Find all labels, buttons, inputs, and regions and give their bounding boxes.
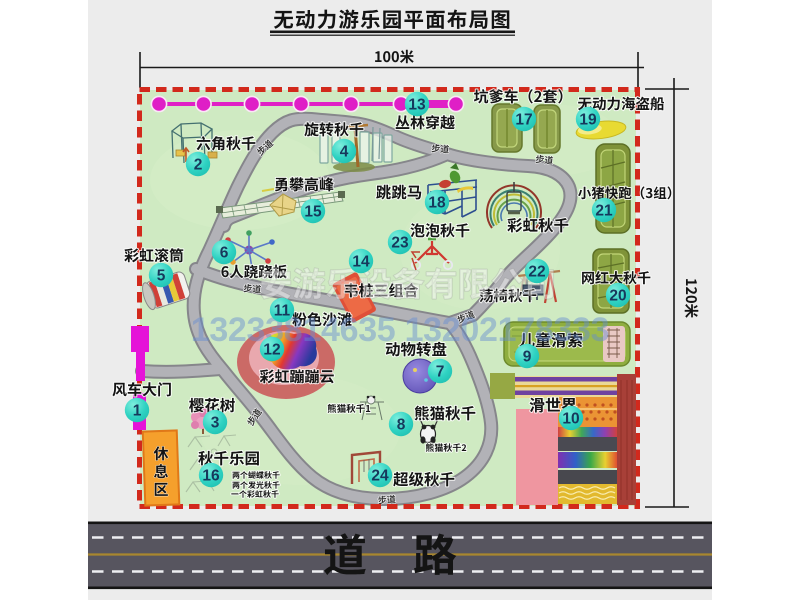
svg-text:7: 7	[436, 364, 445, 381]
svg-text:10: 10	[562, 411, 579, 428]
svg-text:22: 22	[528, 264, 545, 281]
svg-text:2: 2	[194, 157, 203, 174]
svg-text:6: 6	[220, 245, 229, 262]
svg-text:14: 14	[352, 254, 370, 271]
svg-text:13: 13	[408, 97, 426, 114]
svg-text:19: 19	[579, 112, 597, 129]
svg-text:5: 5	[157, 268, 166, 285]
svg-text:20: 20	[609, 288, 626, 305]
svg-text:23: 23	[391, 235, 409, 252]
svg-text:16: 16	[202, 468, 220, 485]
svg-text:21: 21	[595, 203, 613, 220]
svg-text:12: 12	[263, 342, 280, 359]
svg-text:13233814635 13202178333: 13233814635 13202178333	[191, 311, 610, 349]
svg-text:24: 24	[371, 468, 389, 485]
svg-text:4: 4	[340, 144, 349, 161]
svg-text:1: 1	[133, 403, 142, 420]
svg-text:9: 9	[523, 349, 532, 366]
svg-text:3: 3	[211, 415, 220, 432]
svg-text:17: 17	[515, 112, 532, 129]
svg-text:15: 15	[304, 204, 322, 221]
svg-text:18: 18	[428, 195, 446, 212]
svg-text:8: 8	[397, 417, 406, 434]
svg-text:11: 11	[274, 303, 291, 320]
